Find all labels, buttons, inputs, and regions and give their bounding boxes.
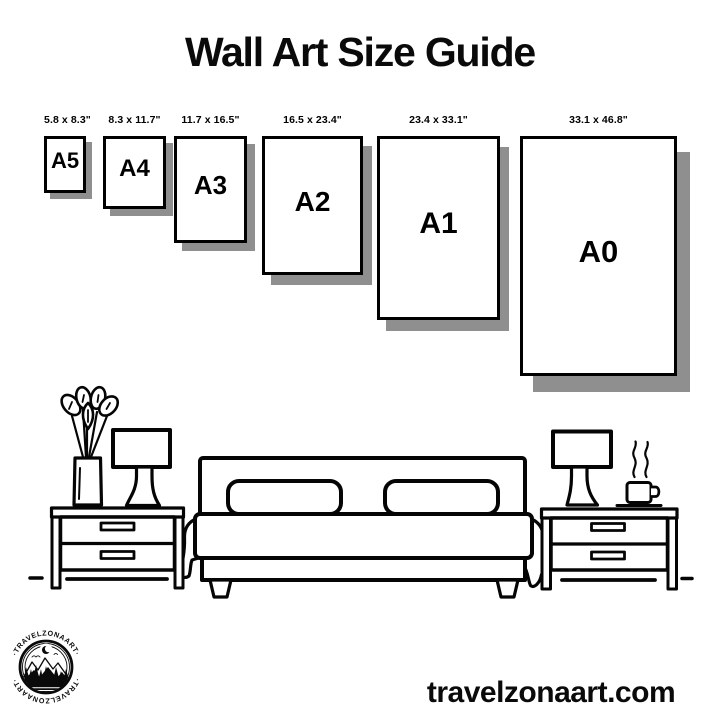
size-frame-a5: 5.8 x 8.3" A5 xyxy=(44,112,86,193)
double-bed-icon xyxy=(179,458,547,597)
size-code-a5: A5 xyxy=(51,148,79,174)
wall-art-size-guide-poster: Wall Art Size Guide 5.8 x 8.3" A5 8.3 x … xyxy=(0,0,720,720)
size-dimensions-a4: 8.3 x 11.7" xyxy=(103,112,166,136)
size-code-a0: A0 xyxy=(579,234,619,270)
size-frame-a3: 11.7 x 16.5" A3 xyxy=(174,112,247,243)
size-frame-a1: 23.4 x 33.1" A1 xyxy=(377,112,500,320)
page-title: Wall Art Size Guide xyxy=(0,29,720,76)
brand-logo: ·TRAVELZONAART· ·TRAVELZONAART· xyxy=(3,624,89,710)
poster-frame-a4: A4 xyxy=(103,136,166,209)
website-url: travelzonaart.com xyxy=(400,676,702,710)
size-frame-a4: 8.3 x 11.7" A4 xyxy=(103,112,166,209)
size-code-a2: A2 xyxy=(295,186,331,218)
table-lamp-right-icon xyxy=(553,432,611,506)
poster-frame-a3: A3 xyxy=(174,136,247,243)
nightstand-right-icon xyxy=(542,509,678,589)
size-code-a4: A4 xyxy=(119,155,150,183)
poster-frame-a5: A5 xyxy=(44,136,86,193)
bedroom-illustration xyxy=(25,382,700,600)
nightstand-left-icon xyxy=(52,508,184,588)
table-lamp-left-icon xyxy=(113,430,170,506)
size-dimensions-a1: 23.4 x 33.1" xyxy=(377,112,500,136)
size-frame-a0: 33.1 x 46.8" A0 xyxy=(520,112,677,376)
size-frame-a2: 16.5 x 23.4" A2 xyxy=(262,112,363,275)
poster-frame-a2: A2 xyxy=(262,136,363,275)
size-code-a1: A1 xyxy=(419,207,457,241)
size-dimensions-a2: 16.5 x 23.4" xyxy=(262,112,363,136)
poster-frame-a0: A0 xyxy=(520,136,677,376)
poster-frame-a1: A1 xyxy=(377,136,500,320)
coffee-cup-icon xyxy=(617,442,661,506)
size-dimensions-a3: 11.7 x 16.5" xyxy=(174,112,247,136)
size-code-a3: A3 xyxy=(194,170,227,201)
size-dimensions-a5: 5.8 x 8.3" xyxy=(44,112,86,136)
size-dimensions-a0: 33.1 x 46.8" xyxy=(520,112,677,136)
